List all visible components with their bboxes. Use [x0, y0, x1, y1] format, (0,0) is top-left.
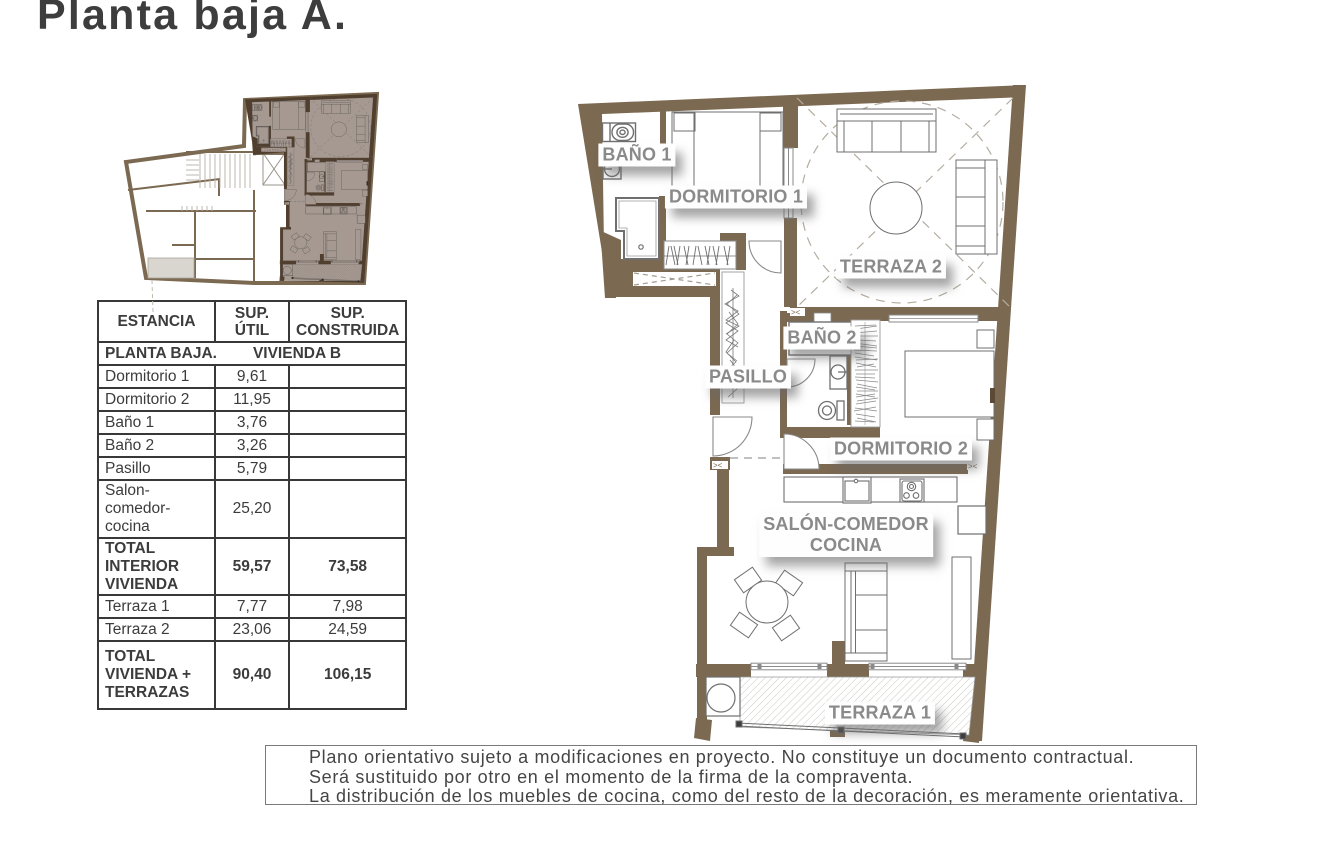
- svg-text:><: ><: [713, 461, 723, 470]
- svg-text:><: ><: [791, 308, 801, 317]
- svg-text:><: ><: [968, 462, 978, 471]
